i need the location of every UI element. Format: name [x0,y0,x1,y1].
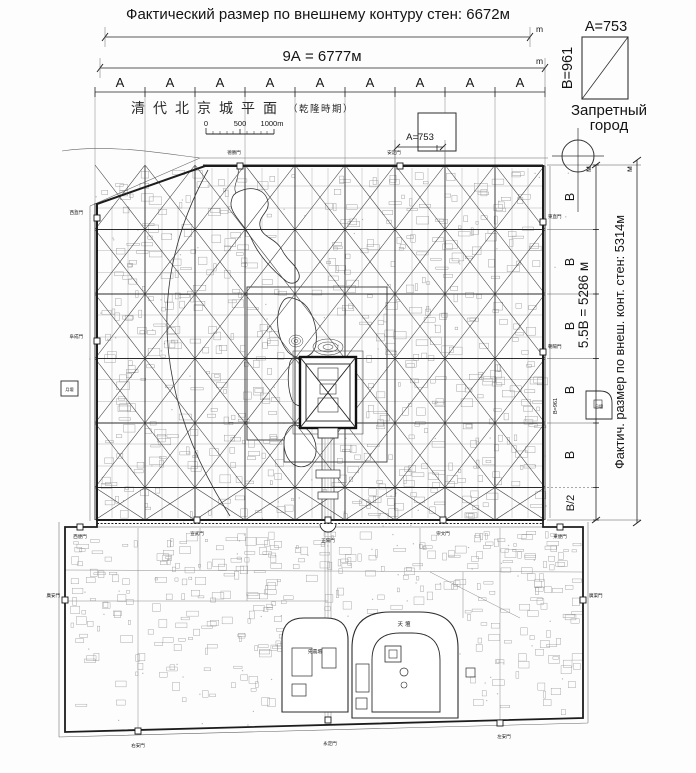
a-label: А [366,75,375,90]
b-label: В [563,258,577,266]
a-label: А [116,75,125,90]
beihai-lake [278,298,317,358]
module-letters-a: А А А А А А А А А [116,75,525,90]
gate-label-fuchengmen: 阜成門 [70,333,84,340]
map-title-paren: （乾隆時期） [288,103,354,115]
a-label: А [266,75,275,90]
top-dim-actual-label: Фактический размер по внешнему контуру с… [126,6,510,23]
scale-1000: 1000m [261,119,284,128]
module-letters-b: В В В В В В/2 [563,193,577,511]
tiantan-inner [372,633,440,712]
site-label-tiantan: 天壇 [397,620,412,628]
legend-name-line2: город [590,117,629,134]
map-dim-b-label: В=961 [553,398,559,414]
beijing-plan-svg: Фактический размер по внешнему контуру с… [0,0,696,773]
legend-a-label: А=753 [585,19,627,35]
gate-label-xizhimen: 西直門 [70,209,84,216]
unit-m-1: m [536,24,543,34]
gate-label-andingmen: 安定門 [387,149,401,156]
right-dim-modules-label: 5.5В = 5286 м [576,262,591,348]
a-label: А [166,75,175,90]
scanned-plan-figure: Фактический размер по внешнему контуру с… [0,0,696,773]
gate-label-xibianmen: 西便門 [73,533,87,540]
a-label: А [216,75,225,90]
map-title-cn: 清代北京城平面 [131,100,285,116]
gate-label-youanmen: 右安門 [131,742,145,749]
a-label: А [466,75,475,90]
top-dimensions: Фактический размер по внешнему контуру с… [95,6,548,97]
b-label: В [563,193,577,201]
right-dim-actual-label: Фактич. размер по внеш. конт. стен: 5314… [612,215,627,469]
scale-0: 0 [204,119,208,128]
shichahai-lake [231,189,299,284]
gate-label-chaoyangmen: 朝陽門 [548,343,562,350]
site-label-yuetan: 月壇 [65,386,73,393]
gate-label-chongwenmen: 崇文門 [436,530,450,537]
a-label: А [516,75,525,90]
module-grid [95,87,641,520]
legend-forbidden-city: А=753 В=961 Запретный город [560,19,647,134]
zhengyangmen-enceinte [320,524,336,532]
gate-label-guangqumen: 廣渠門 [589,592,603,599]
gate-label-zuoanmen: 左安門 [497,733,511,740]
scale-bar [206,128,274,134]
scale-500: 500 [234,119,247,128]
site-label-ritan: 日壇 [595,403,603,410]
b-label: В [563,322,577,330]
a-label: А [316,75,325,90]
b-half-label: В/2 [565,495,577,512]
b-label: В [563,386,577,394]
gate-label-deshengmen: 德勝門 [227,149,241,156]
gate-label-yongdingmen: 永定門 [323,740,337,747]
gate-label-dongbianmen: 東便門 [553,533,567,540]
gate-label-dongzhimen: 東直門 [548,213,562,220]
legend-b-label: В=961 [560,47,576,89]
unit-m-4: м [624,166,634,172]
diagonal-lattice [95,165,545,520]
inner-city-wall [97,166,543,520]
gate-label-zhengyangmen: 正陽門 [321,537,335,544]
a-label: А [416,75,425,90]
gate-label-xuanwumen: 宣武門 [190,530,204,537]
map-dim-a-label: А=753 [406,132,434,143]
gate-label-guanganmen: 廣安門 [47,592,61,599]
unit-m-2: m [536,56,543,66]
b-label: В [563,451,577,459]
unit-m-3: м [583,166,593,172]
site-label-xiannongtan: 先農壇 [308,648,323,655]
top-dim-modules-label: 9А = 6777м [282,48,361,65]
right-dimensions: м м 5.5В = 5286 м Фактич. размер по внеш… [563,157,641,526]
